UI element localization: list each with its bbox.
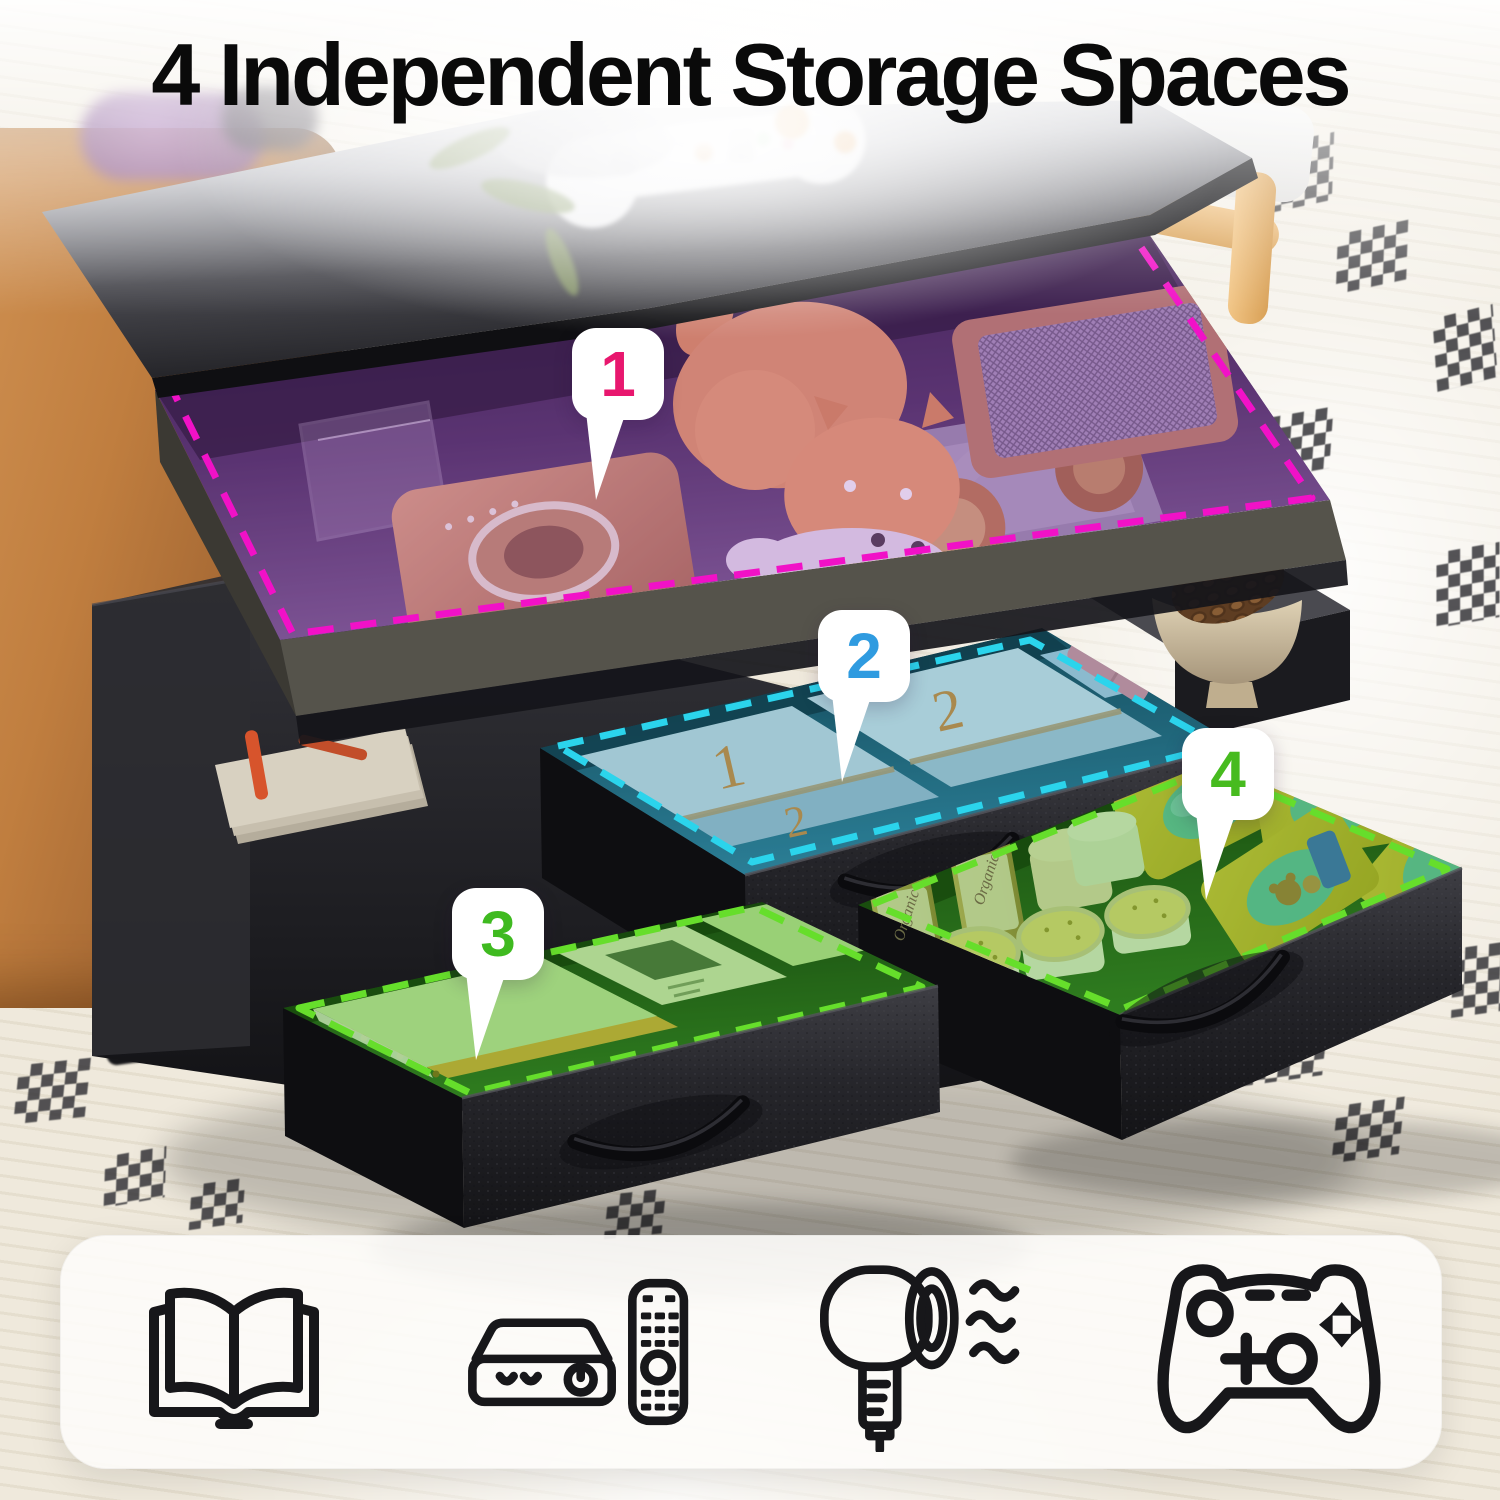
callout-2: 2: [818, 610, 910, 702]
callout-4: 4: [1182, 728, 1274, 820]
media-player-and-remote-icon: [450, 1266, 708, 1438]
callout-4-label: 4: [1210, 742, 1246, 806]
callout-1-label: 1: [600, 342, 636, 406]
callout-3: 3: [452, 888, 544, 980]
product-infographic: 1 2 2: [0, 0, 1500, 1500]
open-book-icon: [134, 1260, 334, 1444]
game-controller-icon: [1141, 1252, 1397, 1452]
callout-1: 1: [572, 328, 664, 420]
callout-3-label: 3: [480, 902, 516, 966]
legend-item-game-controller: [1096, 1236, 1441, 1468]
legend-item-hair-dryer: [751, 1236, 1096, 1468]
hair-dryer-icon: [807, 1252, 1041, 1452]
legend-item-books: [61, 1236, 406, 1468]
bowl-foot: [1206, 682, 1258, 708]
page-title: 4 Independent Storage Spaces: [0, 24, 1500, 126]
callout-2-label: 2: [846, 624, 882, 688]
legend-item-media-player: [406, 1236, 751, 1468]
legend-panel: [60, 1235, 1442, 1469]
